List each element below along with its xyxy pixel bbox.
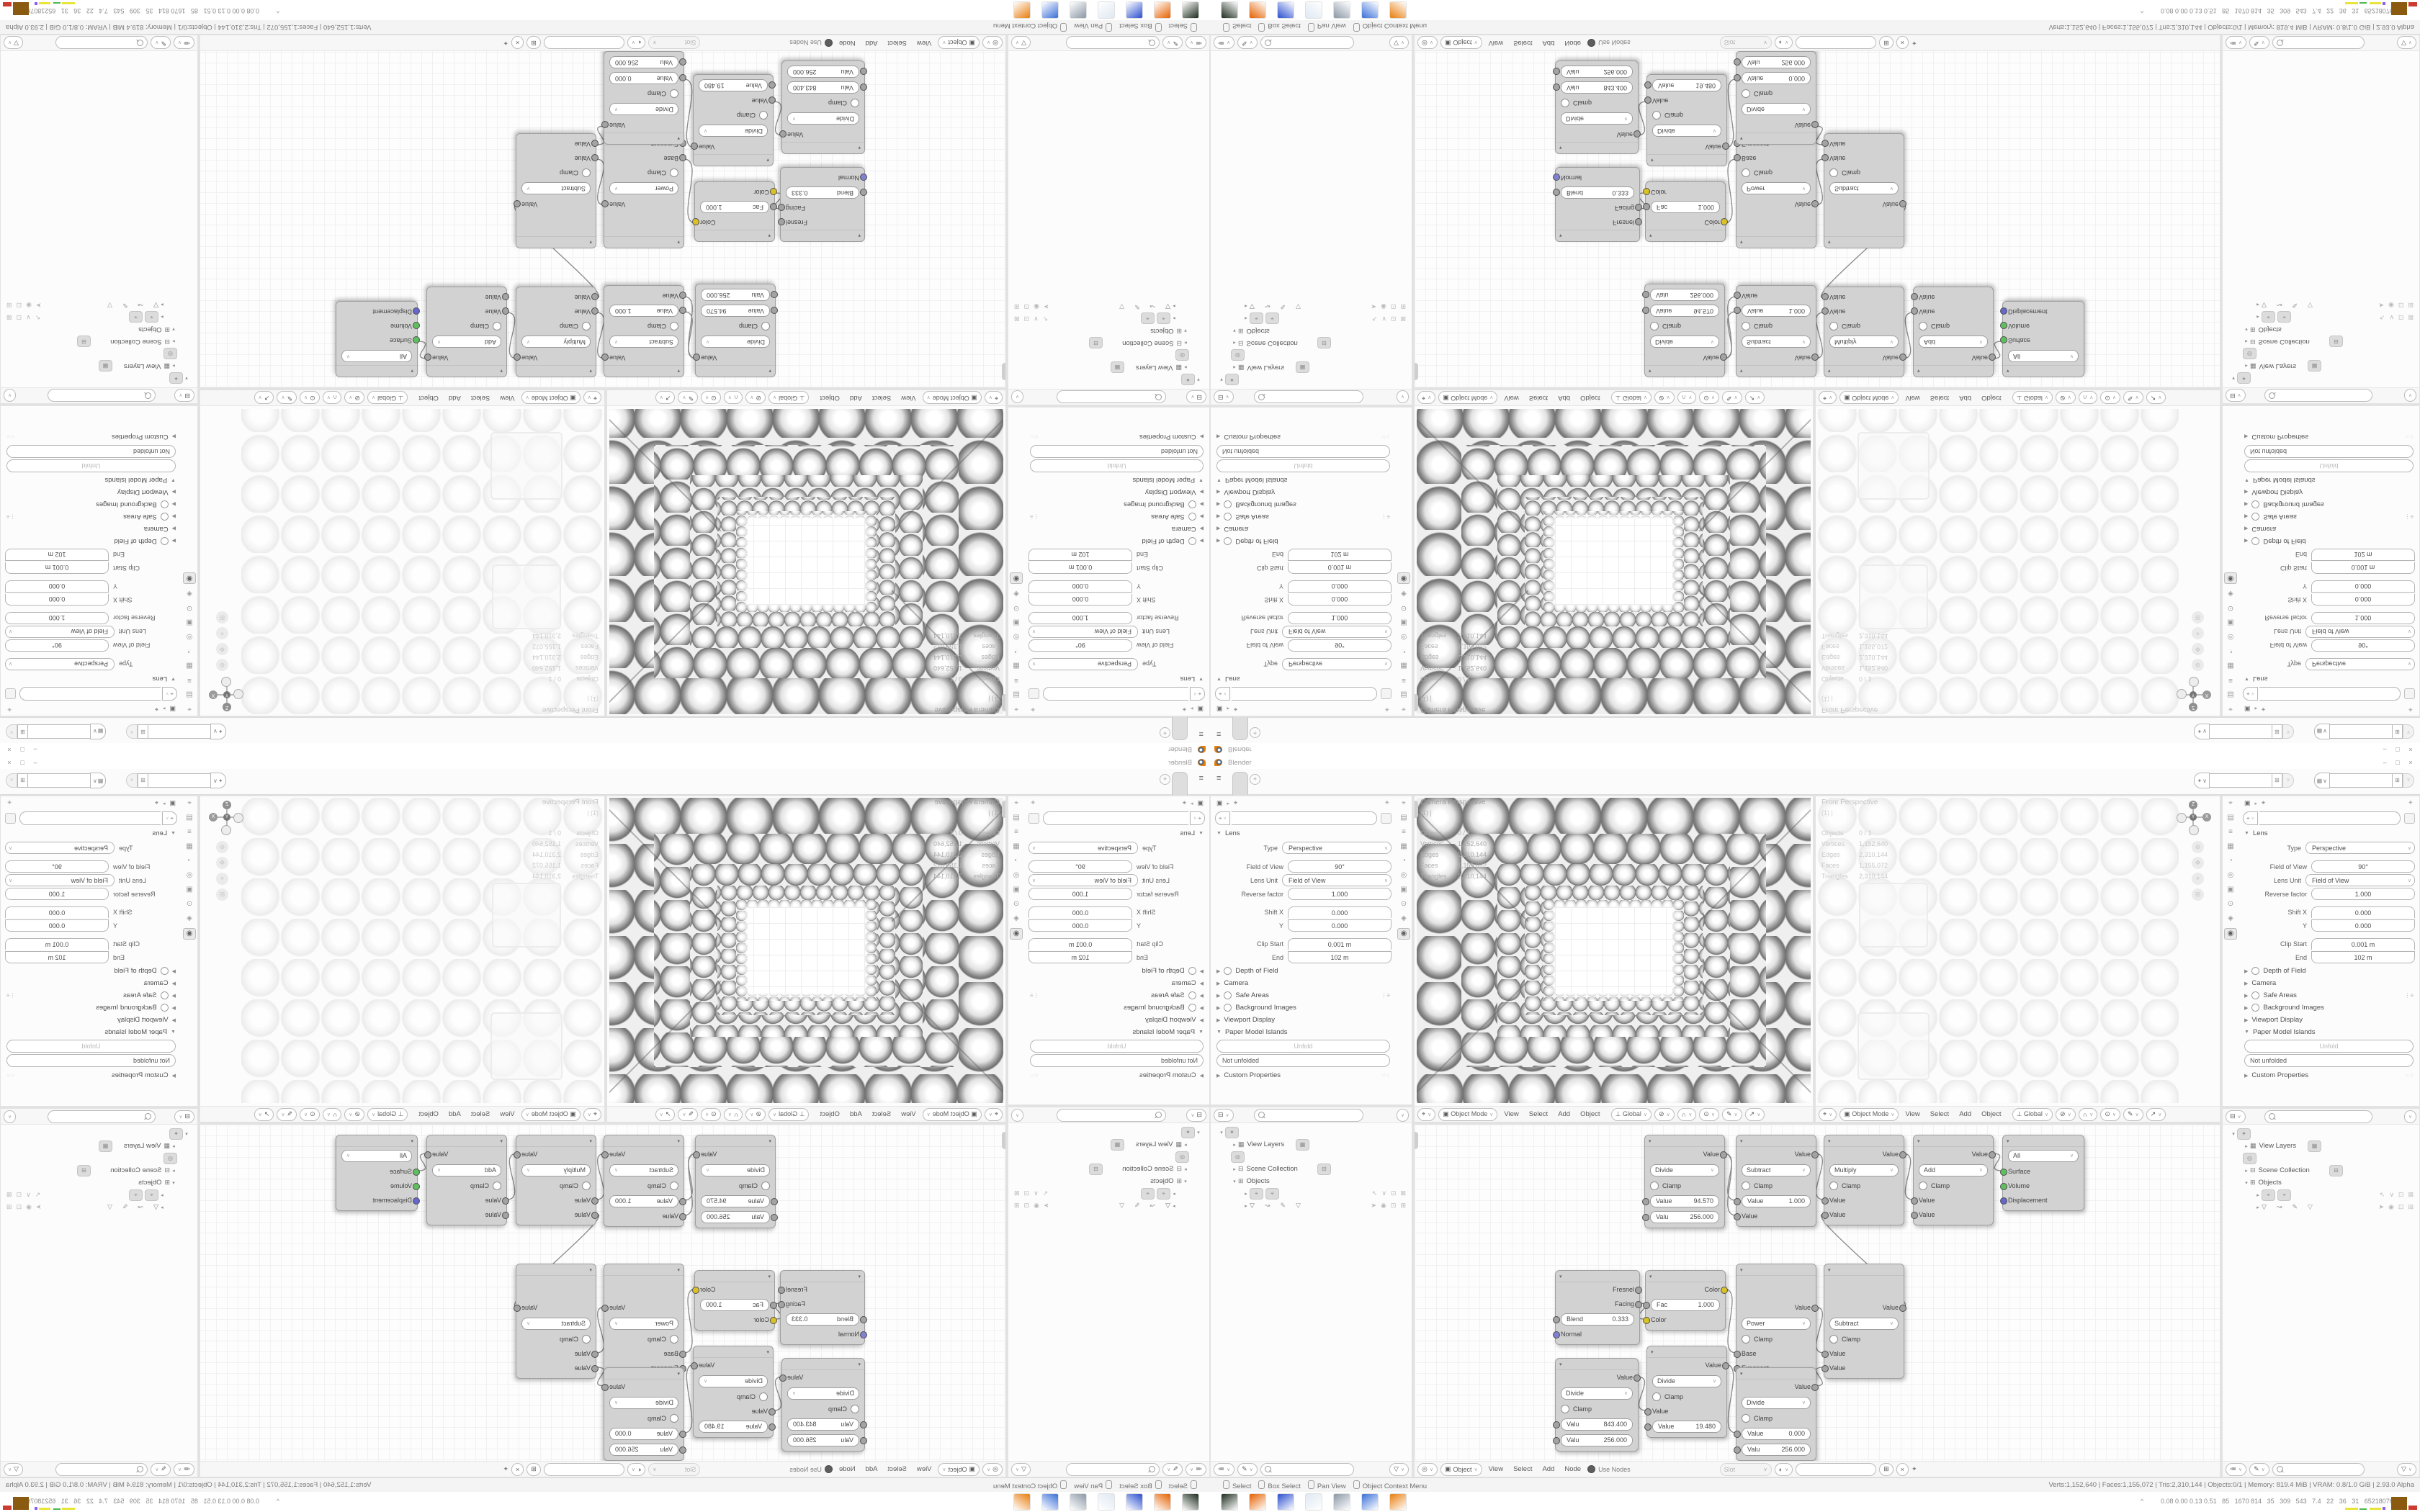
outliner-data-dropdown[interactable]: ✎∨ bbox=[151, 1463, 171, 1476]
filter-icon-dropdown[interactable]: ▽∨ bbox=[1389, 37, 1409, 50]
panel-menu-icon[interactable]: ⋮≡ bbox=[6, 513, 16, 520]
outliner-row[interactable]: ▸⊟Scene Collection⊟ bbox=[1211, 1163, 1412, 1175]
editor-type-dropdown[interactable]: ⌖∨ bbox=[1417, 392, 1435, 405]
visibility-toggle-icon[interactable]: ⊞ bbox=[6, 1203, 12, 1211]
visibility-toggle-icon[interactable]: ⊠ bbox=[6, 313, 12, 321]
input-socket[interactable] bbox=[1734, 154, 1741, 161]
panel-lens-header[interactable]: ▼Lens bbox=[1211, 672, 1396, 685]
properties-tab-view-layer[interactable]: ▦ bbox=[184, 660, 195, 670]
node-math-multiply[interactable]: ▾ValueMultiply∨ClampValueValue bbox=[516, 1135, 596, 1225]
zoom-tool-button[interactable]: ⊕ bbox=[216, 841, 228, 853]
visibility-toggle-icon[interactable]: ↖ bbox=[1372, 1189, 1378, 1197]
taskbar-app-notes-icon[interactable] bbox=[1098, 1, 1115, 19]
node-operation-dropdown[interactable]: Divide∨ bbox=[1561, 1387, 1633, 1400]
panel-depth-of-field[interactable]: ▶Depth of Field bbox=[1, 965, 181, 977]
menu-node[interactable]: Node bbox=[835, 39, 859, 47]
outliner-search-input[interactable] bbox=[1057, 1109, 1166, 1122]
clamp-checkbox[interactable] bbox=[670, 1182, 678, 1190]
menu-add[interactable]: Add bbox=[1554, 394, 1574, 402]
material-browse-dropdown[interactable]: ◐∨ bbox=[627, 37, 646, 50]
clamp-checkbox[interactable] bbox=[851, 1405, 859, 1413]
properties-tab-output[interactable]: ≡ bbox=[1010, 827, 1022, 837]
node-operation-dropdown[interactable]: Multiply∨ bbox=[521, 1164, 591, 1176]
cam-chip-icon[interactable]: ⌖ bbox=[129, 312, 143, 323]
node-math-divide-3[interactable]: ▾ValueDivide∨ClampValueValue19.480 bbox=[1646, 1346, 1727, 1438]
input-socket[interactable] bbox=[1553, 1316, 1560, 1323]
input-socket[interactable] bbox=[1644, 96, 1652, 104]
node-header[interactable]: ▾ bbox=[516, 236, 596, 248]
input-socket[interactable] bbox=[1821, 140, 1829, 147]
menu-select[interactable]: Select bbox=[884, 1465, 910, 1473]
camera-data-icon[interactable]: ⌖ bbox=[1234, 799, 1237, 807]
pin-icon[interactable]: ✦ bbox=[1030, 799, 1036, 807]
node-value-field[interactable]: Valu256.000 bbox=[1561, 1434, 1633, 1446]
input-socket[interactable] bbox=[770, 1302, 777, 1309]
panel-background-images[interactable]: ▶Background Images bbox=[2238, 1002, 2419, 1014]
properties-tab-output[interactable]: ≡ bbox=[184, 675, 195, 685]
node-header[interactable]: ▾ bbox=[604, 132, 684, 144]
visibility-toggle-icon[interactable]: ↖ bbox=[1372, 315, 1378, 323]
input-socket[interactable] bbox=[679, 307, 686, 314]
properties-tab-view-layer[interactable]: ▦ bbox=[1010, 842, 1022, 852]
property-value-lens-unit[interactable]: Field of View∨ bbox=[2305, 874, 2415, 886]
header-toggle-3[interactable]: ✎∨ bbox=[277, 392, 297, 405]
view-layer-selector[interactable]: ▦∨⊞∨ bbox=[6, 773, 106, 788]
taskbar-app-notes-icon[interactable] bbox=[1305, 1493, 1322, 1511]
editor-type-dropdown[interactable]: ⌖∨ bbox=[1819, 392, 1837, 405]
node-operation-dropdown[interactable]: Add∨ bbox=[1919, 336, 1988, 348]
node-math-subtract-2[interactable]: ▾ValueSubtract∨ClampValueValue bbox=[1824, 133, 1904, 248]
zoom-tool-button[interactable]: ⊕ bbox=[2192, 659, 2204, 671]
clamp-checkbox[interactable] bbox=[1829, 1182, 1838, 1190]
input-socket[interactable] bbox=[1644, 1423, 1652, 1431]
taskbar-app-window-icon[interactable] bbox=[1333, 1, 1350, 19]
visibility-toggle-icon[interactable]: ⊡ bbox=[17, 313, 22, 321]
visibility-toggle-icon[interactable]: ⊡ bbox=[17, 301, 22, 309]
visibility-toggle-icon[interactable]: ◉ bbox=[1034, 1202, 1039, 1210]
output-socket[interactable] bbox=[514, 1151, 521, 1158]
visibility-toggle-icon[interactable]: ∨ bbox=[1034, 315, 1039, 323]
node-value-field[interactable]: Value0.000 bbox=[609, 1428, 678, 1440]
node-value-field[interactable]: Value0.000 bbox=[1742, 73, 1811, 85]
cam-chip-icon[interactable]: ⌖ bbox=[129, 1189, 143, 1201]
input-socket[interactable] bbox=[591, 1212, 599, 1219]
input-socket[interactable] bbox=[1821, 1365, 1829, 1372]
shader-scope-dropdown[interactable]: ▣ Object∨ bbox=[1440, 1463, 1482, 1476]
outliner-row[interactable]: ▸▽↝✎▽➤◉⊡⊞ bbox=[1211, 300, 1412, 312]
visibility-toggle-icon[interactable]: ⊡ bbox=[17, 1191, 22, 1199]
input-socket[interactable] bbox=[1734, 1446, 1741, 1454]
use-nodes-checkbox[interactable] bbox=[1587, 39, 1595, 47]
input-socket[interactable] bbox=[860, 1331, 867, 1338]
property-value-y[interactable]: 0.000 bbox=[2311, 919, 2415, 932]
output-socket[interactable] bbox=[1899, 200, 1906, 207]
mode-dropdown[interactable]: ▣ Object Mode∨ bbox=[1438, 1108, 1497, 1121]
node-header[interactable]: ▾ bbox=[1914, 1135, 1993, 1147]
node-header[interactable]: ▾ bbox=[1736, 1135, 1816, 1147]
node-value-field[interactable]: Valu843.400 bbox=[787, 1418, 859, 1431]
panel-checkbox[interactable] bbox=[2251, 1004, 2259, 1012]
node-operation-dropdown[interactable]: Divide∨ bbox=[699, 1375, 768, 1387]
menu-select[interactable]: Select bbox=[884, 39, 910, 47]
input-socket[interactable] bbox=[502, 1212, 509, 1219]
visibility-toggle-icon[interactable]: ⊡ bbox=[1024, 315, 1030, 323]
menu-add[interactable]: Add bbox=[1955, 394, 1975, 402]
panel-background-images[interactable]: ▶Background Images bbox=[2238, 498, 2419, 510]
node-math-divide-4[interactable]: ▾ValueDivide∨ClampValue0.000Valu256.000 bbox=[604, 1367, 684, 1461]
properties-tab-render[interactable]: ▤ bbox=[1010, 813, 1022, 823]
outliner-row[interactable]: ▸▦View Layers▦ bbox=[1211, 1138, 1412, 1151]
node-operation-dropdown[interactable]: Divide∨ bbox=[1742, 104, 1811, 116]
grid-view-button[interactable]: ⊞ bbox=[2192, 611, 2204, 624]
view-layer-selector[interactable]: ▦∨⊞∨ bbox=[6, 724, 106, 739]
panel-safe-areas[interactable]: ▶Safe Areas⋮≡ bbox=[1211, 510, 1396, 523]
property-value-field-of-view[interactable]: 90° bbox=[2311, 860, 2415, 873]
node-operation-dropdown[interactable]: Divide∨ bbox=[1561, 113, 1633, 125]
outliner-display-mode-dropdown[interactable]: ⊟∨ bbox=[174, 1110, 194, 1123]
properties-tab-world[interactable]: ◎ bbox=[2225, 870, 2236, 881]
node-operation-dropdown[interactable]: Divide∨ bbox=[609, 104, 678, 116]
clamp-checkbox[interactable] bbox=[1742, 1182, 1750, 1190]
properties-tab-scene[interactable]: ◔ bbox=[1010, 856, 1022, 866]
minimize-button[interactable]: – bbox=[2381, 759, 2388, 766]
properties-tab-output[interactable]: ≡ bbox=[1010, 675, 1022, 685]
node-value-field[interactable]: Value1.000 bbox=[609, 305, 678, 318]
node-header[interactable]: ▾ bbox=[1824, 1135, 1904, 1147]
properties-tab-modifiers[interactable]: ⊙ bbox=[184, 603, 195, 613]
output-socket[interactable] bbox=[514, 1305, 521, 1312]
input-socket[interactable] bbox=[1734, 1213, 1741, 1220]
panel-custom-properties[interactable]: ▶Custom Properties⁙⁙ bbox=[1024, 430, 1209, 444]
pin-icon[interactable]: ✦ bbox=[503, 1465, 508, 1473]
input-socket[interactable] bbox=[591, 1351, 599, 1358]
copy-view-layer-button[interactable]: ⊞ bbox=[2392, 724, 2403, 739]
visibility-toggle-icon[interactable]: ⊠ bbox=[2408, 313, 2414, 321]
material-browse-dropdown[interactable]: ◐∨ bbox=[1775, 1463, 1793, 1476]
linked-data-chip[interactable]: ⊟ bbox=[1317, 1164, 1331, 1175]
scene-chip-icon[interactable]: ✦ bbox=[2237, 1128, 2251, 1140]
node-math-subtract-1[interactable]: ▾ValueSubtract∨ClampValue1.000Value bbox=[604, 1135, 684, 1227]
use-nodes-checkbox[interactable] bbox=[825, 1465, 833, 1473]
panel-camera[interactable]: ▶Camera bbox=[1024, 977, 1209, 989]
node-header[interactable]: ▾ bbox=[427, 365, 506, 377]
slot-dropdown[interactable]: Slot∨ bbox=[648, 1463, 700, 1476]
camera-view-button[interactable]: ⌖ bbox=[2192, 627, 2204, 639]
outliner-row[interactable]: ▸⊟Scene Collection⊟ bbox=[1, 336, 197, 348]
visibility-toggle-icon[interactable]: ➤ bbox=[2379, 301, 2385, 309]
node-operation-dropdown[interactable]: Power∨ bbox=[609, 183, 678, 195]
outliner-row[interactable]: ▾✦ bbox=[1008, 1126, 1209, 1138]
menu-select[interactable]: Select bbox=[1927, 394, 1953, 402]
clamp-checkbox[interactable] bbox=[1742, 1414, 1750, 1423]
minimize-button[interactable]: – bbox=[2381, 746, 2388, 753]
panel-checkbox[interactable] bbox=[161, 1004, 169, 1012]
mode-dropdown[interactable]: ▣ Object Mode∨ bbox=[521, 392, 581, 405]
camera-data-icon[interactable]: ⌖ bbox=[1183, 799, 1186, 807]
taskbar-app-image-icon[interactable] bbox=[1361, 1493, 1379, 1511]
filter-icon-dropdown[interactable]: ▽∨ bbox=[2397, 37, 2416, 50]
outliner-row[interactable]: ◎ bbox=[1, 348, 197, 360]
outliner-display-mode-dropdown[interactable]: ⊟∨ bbox=[1186, 391, 1206, 404]
input-socket[interactable] bbox=[679, 74, 686, 81]
input-socket[interactable] bbox=[768, 81, 776, 89]
outliner-item-label[interactable]: View Layers bbox=[2259, 362, 2297, 370]
shader-type-dropdown[interactable]: ◎∨ bbox=[1417, 37, 1438, 50]
visibility-toggle-icon[interactable]: ↖ bbox=[1043, 1189, 1049, 1197]
copy-view-layer-button[interactable]: ⊞ bbox=[17, 724, 28, 739]
taskbar-app-firefox-icon[interactable] bbox=[1249, 1, 1266, 19]
unfold-status-field[interactable]: Not unfolded bbox=[2244, 1054, 2414, 1067]
panel-depth-of-field[interactable]: ▶Depth of Field bbox=[1211, 535, 1396, 547]
node-operation-dropdown[interactable]: All∨ bbox=[341, 351, 412, 363]
node-operation-dropdown[interactable]: Divide∨ bbox=[699, 125, 768, 138]
outliner-item-label[interactable]: Scene Collection bbox=[110, 1166, 161, 1174]
outliner-scope-dropdown[interactable]: ≔∨ bbox=[1186, 37, 1206, 50]
panel-viewport-display[interactable]: ▶Viewport Display bbox=[1024, 486, 1209, 498]
scene-chip-icon[interactable]: ✦ bbox=[1225, 374, 1239, 386]
header-toggle-1[interactable]: ∩∨ bbox=[724, 1108, 743, 1121]
visibility-toggle-icon[interactable]: ∨ bbox=[2389, 1191, 2394, 1199]
panel-background-images[interactable]: ▶Background Images bbox=[1, 1002, 181, 1014]
properties-tab-tool[interactable]: ⌖ bbox=[2225, 798, 2236, 809]
panel-menu-icon[interactable]: ⋮≡ bbox=[1030, 513, 1039, 520]
output-socket[interactable] bbox=[1811, 1384, 1819, 1391]
system-monitor-expand[interactable]: ^ bbox=[2141, 7, 2143, 14]
output-socket[interactable] bbox=[1635, 204, 1642, 211]
property-value-y[interactable]: 0.000 bbox=[1288, 580, 1391, 593]
panel-checkbox[interactable] bbox=[2251, 513, 2259, 521]
clamp-checkbox[interactable] bbox=[582, 168, 591, 177]
material-unlink-button[interactable]: × bbox=[1896, 37, 1909, 50]
input-socket[interactable] bbox=[1911, 1197, 1918, 1205]
outliner-filter-dropdown[interactable]: ∨ bbox=[2404, 390, 2416, 402]
scene-icon[interactable]: ✦∨ bbox=[2194, 724, 2210, 739]
outliner-row[interactable]: ◎ bbox=[1211, 1151, 1412, 1163]
property-value-clip-start[interactable]: 0.001 m bbox=[1028, 938, 1132, 950]
node-header[interactable]: ▾ bbox=[694, 1346, 773, 1358]
header-toggle-2[interactable]: ⊙∨ bbox=[300, 1108, 320, 1121]
node-header[interactable]: ▾ bbox=[1736, 236, 1816, 248]
property-value-lens-unit[interactable]: Field of View∨ bbox=[1282, 874, 1391, 886]
clamp-checkbox[interactable] bbox=[670, 168, 678, 177]
copy-scene-button[interactable]: ⊞ bbox=[2272, 773, 2282, 788]
node-header[interactable]: ▾ bbox=[1824, 236, 1904, 248]
visibility-toggle-icon[interactable]: ◉ bbox=[2388, 1203, 2394, 1211]
outliner-row[interactable]: ▸⌖⌖↖∨⊡⊠ bbox=[1211, 312, 1412, 325]
properties-tab-object[interactable]: ▣ bbox=[184, 885, 195, 895]
properties-tab-modifiers[interactable]: ⊙ bbox=[1398, 603, 1410, 613]
node-header[interactable]: ▾ bbox=[1645, 1135, 1724, 1147]
panel-checkbox[interactable] bbox=[1224, 967, 1232, 975]
outliner-search-input[interactable] bbox=[1254, 1109, 1363, 1122]
properties-tab-scene[interactable]: ◔ bbox=[1398, 646, 1410, 656]
input-socket[interactable] bbox=[679, 1351, 686, 1358]
clamp-checkbox[interactable] bbox=[1561, 1405, 1569, 1413]
fake-user-shield-icon[interactable] bbox=[1381, 813, 1391, 824]
outliner-item-label[interactable]: Objects bbox=[1247, 1177, 1270, 1185]
gizmo-z-axis[interactable]: Z bbox=[223, 801, 231, 809]
outliner-search-input-2[interactable] bbox=[2272, 1463, 2365, 1476]
node-math-subtract-2[interactable]: ▾ValueSubtract∨ClampValueValue bbox=[1824, 1264, 1904, 1379]
node-operation-dropdown[interactable]: Subtract∨ bbox=[521, 183, 591, 195]
node-header[interactable]: ▾ bbox=[1556, 230, 1639, 241]
unfold-status-field[interactable]: Not unfolded bbox=[1030, 1054, 1204, 1067]
properties-tab-physics[interactable]: ◈ bbox=[1398, 588, 1410, 598]
outliner-item-label[interactable]: Objects bbox=[1150, 1177, 1173, 1185]
property-value-end[interactable]: 102 m bbox=[5, 549, 109, 561]
linked-data-chip[interactable]: ▦ bbox=[2308, 361, 2321, 372]
header-toggle-0[interactable]: ⊘∨ bbox=[1654, 1108, 1675, 1121]
editor-type-dropdown[interactable]: ⌖∨ bbox=[1819, 1108, 1837, 1121]
menu-add[interactable]: Add bbox=[445, 394, 465, 402]
linked-data-chip[interactable]: ⊟ bbox=[77, 336, 91, 348]
globe-chip-icon[interactable]: ◎ bbox=[1231, 1151, 1245, 1163]
panel-depth-of-field[interactable]: ▶Depth of Field bbox=[1211, 965, 1396, 977]
outliner-search-input-2[interactable] bbox=[1066, 1463, 1160, 1476]
cam-chip-icon[interactable]: ⌖ bbox=[1157, 1188, 1170, 1200]
header-toggle-2[interactable]: ⊙∨ bbox=[1699, 392, 1719, 405]
panel-background-images[interactable]: ▶Background Images bbox=[1024, 498, 1209, 510]
output-socket[interactable] bbox=[601, 1151, 609, 1158]
output-socket[interactable] bbox=[1633, 1374, 1641, 1382]
input-socket[interactable] bbox=[2000, 322, 2007, 329]
panel-lens-header[interactable]: ▼Lens bbox=[2238, 827, 2419, 840]
input-socket[interactable] bbox=[413, 1197, 420, 1205]
input-socket[interactable] bbox=[591, 140, 599, 147]
outliner-item-label[interactable]: Objects bbox=[1247, 327, 1270, 335]
outliner-row[interactable]: ▾⊞Objects bbox=[1211, 1175, 1412, 1187]
gizmo-z-neg[interactable] bbox=[2189, 677, 2199, 687]
node-value-field[interactable]: Value0.000 bbox=[609, 73, 678, 85]
pan-tool-button[interactable]: ✥ bbox=[2192, 857, 2204, 869]
copy-scene-button[interactable]: ⊞ bbox=[138, 724, 148, 739]
visibility-toggle-icon[interactable]: ⊡ bbox=[1391, 302, 1397, 310]
menu-node[interactable]: Node bbox=[1561, 39, 1585, 47]
menu-hamburger-icon[interactable]: ≡ bbox=[1199, 729, 1204, 738]
input-socket[interactable] bbox=[770, 188, 777, 195]
properties-tab-object[interactable]: ▣ bbox=[2225, 885, 2236, 895]
header-toggle-4[interactable]: ↗∨ bbox=[254, 392, 274, 405]
pin-icon[interactable]: ✦ bbox=[503, 39, 508, 47]
property-value-y[interactable]: 0.000 bbox=[5, 580, 109, 593]
material-browse-dropdown[interactable]: ◐∨ bbox=[1775, 37, 1793, 50]
visibility-toggle-icon[interactable]: ◉ bbox=[1381, 1202, 1386, 1210]
outliner-row[interactable]: ▾✦ bbox=[1211, 374, 1412, 386]
properties-tab-output[interactable]: ≡ bbox=[2225, 675, 2236, 685]
linked-data-chip[interactable]: ▦ bbox=[1296, 1139, 1309, 1151]
node-value-field[interactable]: Valu256.000 bbox=[609, 1444, 678, 1456]
visibility-toggle-icon[interactable]: ➤ bbox=[1044, 302, 1049, 310]
material-copy-button[interactable]: ⊞ bbox=[1879, 37, 1894, 50]
panel-checkbox[interactable] bbox=[1188, 500, 1196, 508]
node-header[interactable]: ▾ bbox=[782, 1359, 864, 1370]
mode-dropdown[interactable]: ▣ Object Mode∨ bbox=[923, 1108, 982, 1121]
node-header[interactable]: ▾ bbox=[1556, 142, 1638, 153]
input-socket[interactable] bbox=[1734, 292, 1741, 299]
input-socket[interactable] bbox=[771, 307, 778, 314]
object-icon[interactable]: ▣ bbox=[1197, 705, 1204, 713]
input-socket[interactable] bbox=[679, 1431, 686, 1438]
property-value-type[interactable]: Perspective∨ bbox=[5, 658, 115, 670]
node-math-divide-3[interactable]: ▾ValueDivide∨ClampValueValue19.480 bbox=[693, 1346, 774, 1438]
panel-checkbox[interactable] bbox=[1188, 513, 1196, 521]
menu-add[interactable]: Add bbox=[1538, 39, 1558, 47]
outliner-row[interactable]: ▸⌖⌖↖∨⊡⊠ bbox=[2223, 1189, 2419, 1201]
unfold-status-field[interactable]: Not unfolded bbox=[2244, 445, 2414, 458]
taskbar-app-blender-icon[interactable] bbox=[1013, 1493, 1031, 1511]
property-value-clip-start[interactable]: 0.001 m bbox=[5, 562, 109, 574]
menu-select[interactable]: Select bbox=[869, 1110, 895, 1118]
panel-camera[interactable]: ▶Camera bbox=[1, 523, 181, 535]
properties-tab-camera-data[interactable]: ◉ bbox=[1397, 928, 1410, 940]
output-socket[interactable] bbox=[693, 1151, 700, 1158]
input-socket[interactable] bbox=[1553, 1421, 1560, 1428]
camera-view-button[interactable]: ⌖ bbox=[216, 627, 228, 639]
node-header[interactable]: ▾ bbox=[1736, 365, 1816, 377]
pan-tool-button[interactable]: ✥ bbox=[216, 643, 228, 655]
fake-user-shield-icon[interactable] bbox=[1028, 813, 1039, 824]
outliner-search-input[interactable] bbox=[2264, 1110, 2372, 1123]
node-header[interactable]: ▾ bbox=[696, 365, 775, 377]
camera-data-icon[interactable]: ⌖ bbox=[2262, 799, 2265, 807]
properties-tab-modifiers[interactable]: ⊙ bbox=[1010, 899, 1022, 909]
visibility-toggle-icon[interactable]: ⊡ bbox=[1391, 1189, 1397, 1197]
panel-safe-areas[interactable]: ▶Safe Areas⋮≡ bbox=[1024, 510, 1209, 523]
clamp-checkbox[interactable] bbox=[670, 322, 678, 330]
input-socket[interactable] bbox=[1642, 307, 1649, 314]
node-math-divide-4[interactable]: ▾ValueDivide∨ClampValue0.000Valu256.000 bbox=[1736, 1367, 1816, 1461]
output-socket[interactable] bbox=[691, 1362, 698, 1369]
property-value-field-of-view[interactable]: 90° bbox=[5, 639, 109, 652]
input-socket[interactable] bbox=[1821, 1351, 1829, 1358]
data-name-field[interactable]: ⌖∨ bbox=[5, 687, 177, 701]
outliner-display-mode-dropdown[interactable]: ⊟∨ bbox=[174, 390, 194, 402]
clamp-checkbox[interactable] bbox=[759, 1392, 768, 1401]
pin-icon[interactable]: ✦ bbox=[2408, 705, 2414, 713]
output-socket[interactable] bbox=[1721, 218, 1728, 225]
outliner-row[interactable]: ▸⌖⌖↖∨⊡⊠ bbox=[1, 311, 197, 323]
data-name-field[interactable]: ⌖∨ bbox=[2243, 687, 2415, 701]
globe-chip-icon[interactable]: ◎ bbox=[2243, 348, 2257, 360]
node-header[interactable]: ▾ bbox=[1736, 1264, 1816, 1276]
node-math-divide-1[interactable]: ▾ValueDivide∨ClampValue94.570Valu256.000 bbox=[695, 1135, 776, 1228]
input-socket[interactable] bbox=[679, 292, 686, 299]
object-icon[interactable]: ▣ bbox=[1216, 705, 1223, 713]
outliner-row[interactable]: ▸⌖⌖↖∨⊡⊠ bbox=[2223, 311, 2419, 323]
input-socket[interactable] bbox=[1643, 1317, 1650, 1324]
cam-chip-icon[interactable]: ⌖ bbox=[1250, 313, 1263, 325]
header-toggle-3[interactable]: ✎∨ bbox=[2123, 392, 2143, 405]
transform-orientation-dropdown[interactable]: ⊥ Global∨ bbox=[2012, 1108, 2053, 1121]
gizmo-z-neg[interactable] bbox=[221, 677, 231, 687]
outliner-item-label[interactable]: View Layers bbox=[2259, 1142, 2297, 1150]
visibility-toggle-icon[interactable]: ➤ bbox=[2379, 1203, 2385, 1211]
node-operation-dropdown[interactable]: Multiply∨ bbox=[1829, 336, 1899, 348]
menu-node[interactable]: Node bbox=[835, 1465, 859, 1473]
transform-orientation-dropdown[interactable]: ⊥ Global∨ bbox=[768, 1108, 809, 1121]
visibility-toggle-icon[interactable]: ➤ bbox=[1044, 1202, 1049, 1210]
properties-tab-render[interactable]: ▤ bbox=[184, 689, 195, 699]
property-value-type[interactable]: Perspective∨ bbox=[1028, 658, 1138, 670]
node-math-subtract-1[interactable]: ▾ValueSubtract∨ClampValue1.000Value bbox=[604, 285, 684, 377]
input-socket[interactable] bbox=[1644, 81, 1652, 89]
input-socket[interactable] bbox=[413, 1183, 420, 1190]
node-operation-dropdown[interactable]: Subtract∨ bbox=[609, 1164, 678, 1176]
properties-tab-render[interactable]: ▤ bbox=[1398, 813, 1410, 823]
navigation-gizmo[interactable]: Z X Y bbox=[2177, 678, 2210, 711]
node-invert[interactable]: ▾ColorFac1.000Color bbox=[1645, 1270, 1726, 1331]
node-operation-dropdown[interactable]: Divide∨ bbox=[1650, 1164, 1719, 1176]
